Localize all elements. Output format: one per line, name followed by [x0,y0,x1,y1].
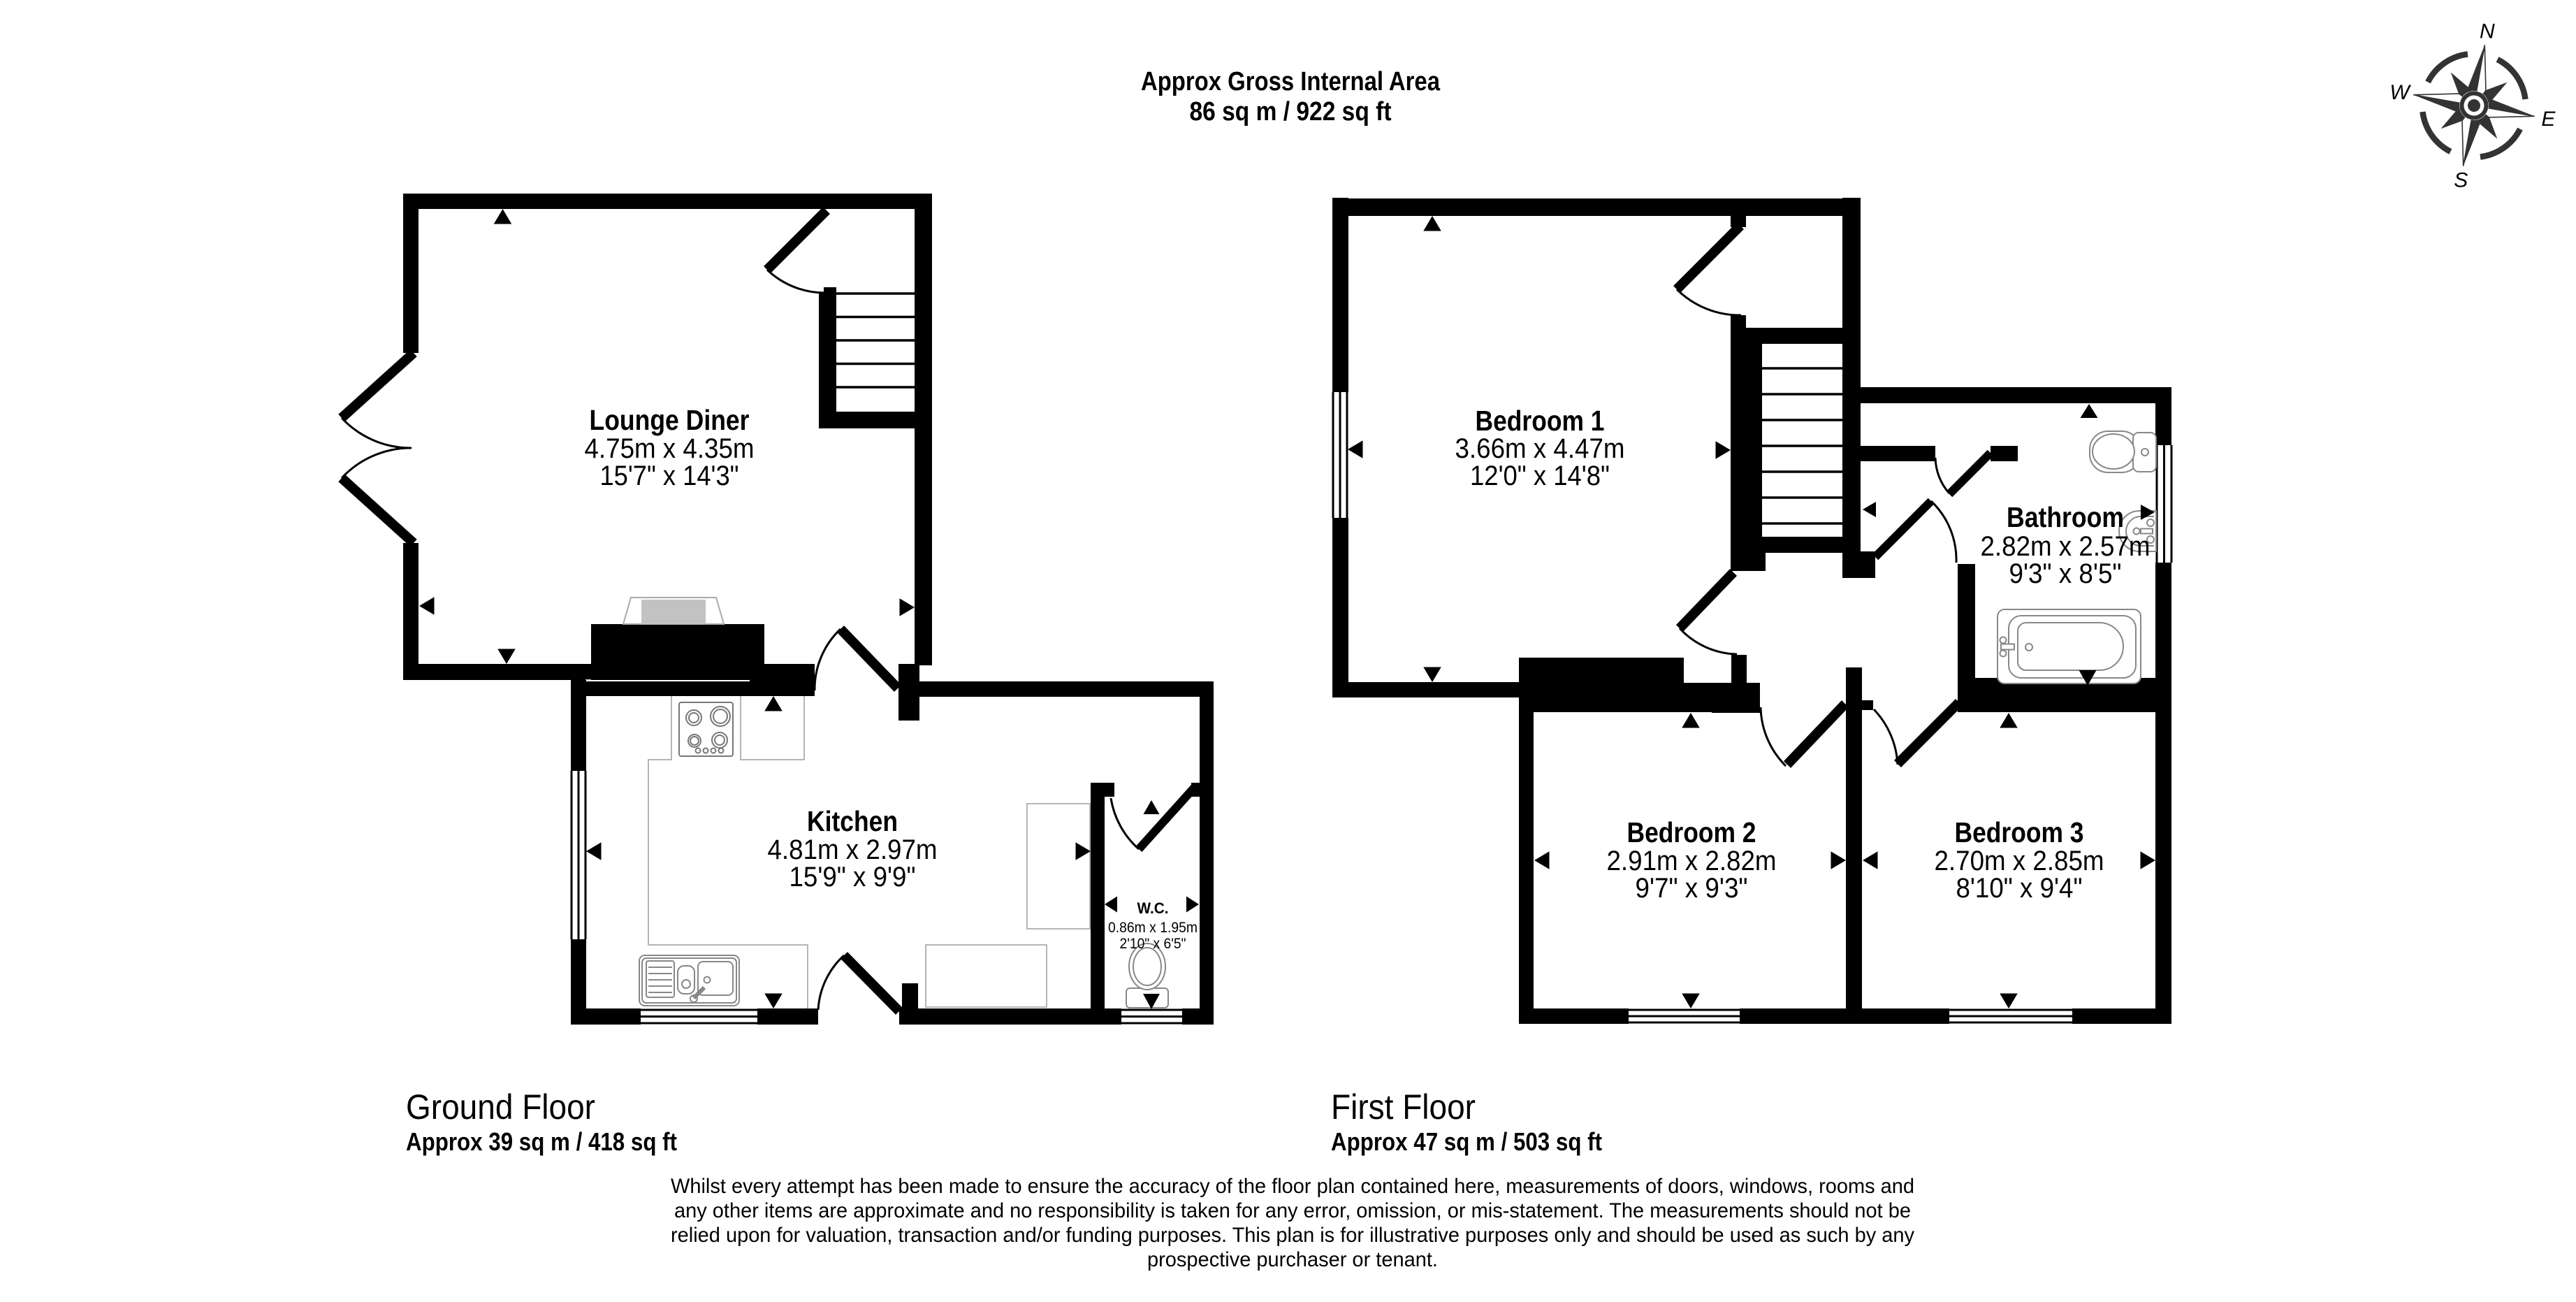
svg-text:First Floor: First Floor [1331,1087,1476,1127]
svg-text:prospective purchaser or tenan: prospective purchaser or tenant. [1147,1248,1438,1271]
svg-text:9'7" x 9'3": 9'7" x 9'3" [1636,873,1748,904]
svg-text:Bathroom: Bathroom [2007,501,2124,533]
svg-text:15'7" x 14'3": 15'7" x 14'3" [600,461,739,491]
svg-text:Ground Floor: Ground Floor [406,1087,595,1127]
svg-text:W: W [2389,81,2411,104]
svg-text:Bedroom 2: Bedroom 2 [1627,816,1756,848]
svg-text:2.91m x 2.82m: 2.91m x 2.82m [1607,846,1777,876]
svg-text:2.82m x 2.57m: 2.82m x 2.57m [1981,531,2151,562]
svg-text:4.75m x 4.35m: 4.75m x 4.35m [585,433,755,464]
svg-text:any other items are approximat: any other items are approximate and no r… [674,1199,1911,1222]
svg-text:15'9" x 9'9": 15'9" x 9'9" [789,862,916,892]
svg-text:3.66m x 4.47m: 3.66m x 4.47m [1455,433,1625,464]
svg-text:Bedroom 1: Bedroom 1 [1476,405,1605,437]
svg-text:Bedroom 3: Bedroom 3 [1955,816,2084,848]
svg-text:4.81m x 2.97m: 4.81m x 2.97m [768,834,938,865]
svg-text:8'10" x 9'4": 8'10" x 9'4" [1956,873,2083,904]
svg-text:S: S [2454,168,2468,191]
svg-text:2'10" x 6'5": 2'10" x 6'5" [1120,936,1186,952]
svg-text:E: E [2541,108,2556,131]
svg-text:Whilst every attempt has been: Whilst every attempt has been made to en… [671,1175,1914,1198]
svg-text:Approx 39 sq m / 418 sq ft: Approx 39 sq m / 418 sq ft [406,1127,677,1156]
svg-text:N: N [2480,20,2495,43]
svg-text:12'0" x 14'8": 12'0" x 14'8" [1470,461,1610,491]
svg-text:2.70m x 2.85m: 2.70m x 2.85m [1935,846,2104,876]
svg-text:Approx Gross Internal Area: Approx Gross Internal Area [1141,67,1441,96]
svg-text:Kitchen: Kitchen [807,805,898,837]
svg-text:Approx 47 sq m / 503 sq ft: Approx 47 sq m / 503 sq ft [1331,1127,1602,1156]
svg-text:0.86m x 1.95m: 0.86m x 1.95m [1108,920,1198,936]
svg-text:86 sq m / 922 sq ft: 86 sq m / 922 sq ft [1190,97,1392,126]
svg-text:Lounge Diner: Lounge Diner [590,404,750,436]
svg-text:relied upon for valuation, tra: relied upon for valuation, transaction a… [671,1224,1914,1247]
svg-text:W.C.: W.C. [1137,899,1169,917]
svg-text:9'3" x 8'5": 9'3" x 8'5" [2009,558,2122,589]
